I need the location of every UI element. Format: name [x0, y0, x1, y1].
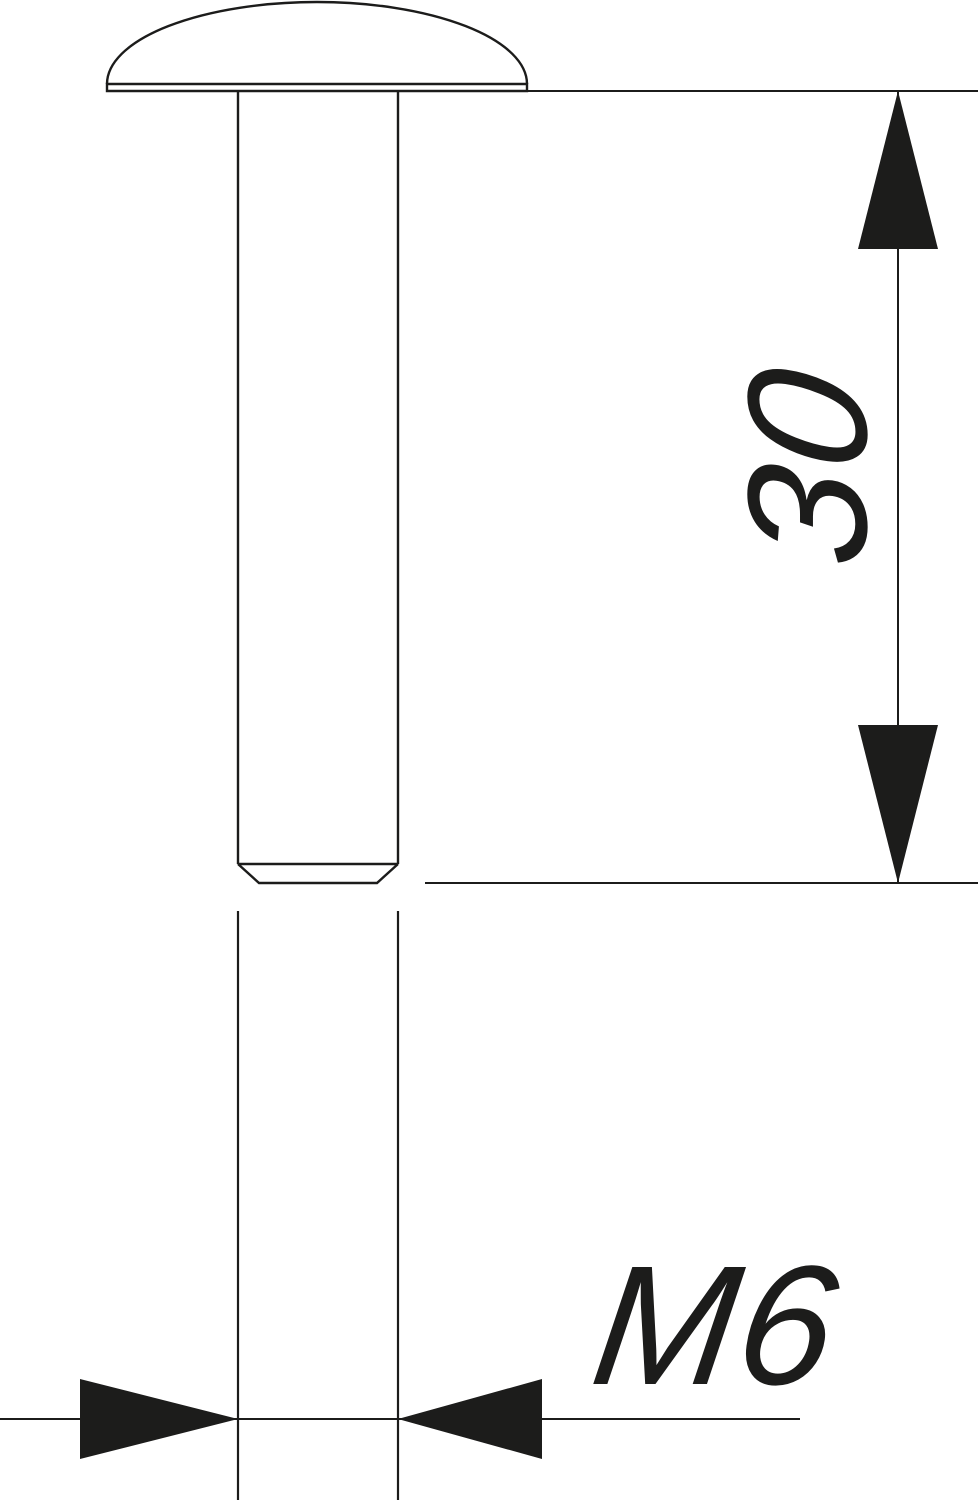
length-dimension: 30: [425, 91, 978, 883]
thread-dimension-label: M6: [583, 1231, 850, 1421]
arrowhead-down-icon: [858, 725, 938, 883]
thread-dimension: M6: [0, 1231, 850, 1459]
thread-dimension-marks: M6: [80, 1231, 850, 1459]
thread-side-view: [238, 911, 398, 1500]
length-dimension-label: 30: [713, 356, 903, 576]
screw-head-base-flange: [107, 84, 527, 91]
screw-side-view: [107, 2, 527, 883]
arrowhead-right-icon: [80, 1379, 238, 1459]
screw-tip-chamfer-outline: [238, 864, 398, 883]
length-dimension-marks: 30: [713, 91, 938, 883]
arrowhead-left-icon: [398, 1379, 542, 1459]
technical-drawing-canvas: 30 M6: [0, 0, 978, 1500]
drawing-sheet: 30 M6: [0, 0, 978, 1500]
screw-head-dome-outline: [107, 2, 527, 84]
arrowhead-up-icon: [858, 91, 938, 249]
